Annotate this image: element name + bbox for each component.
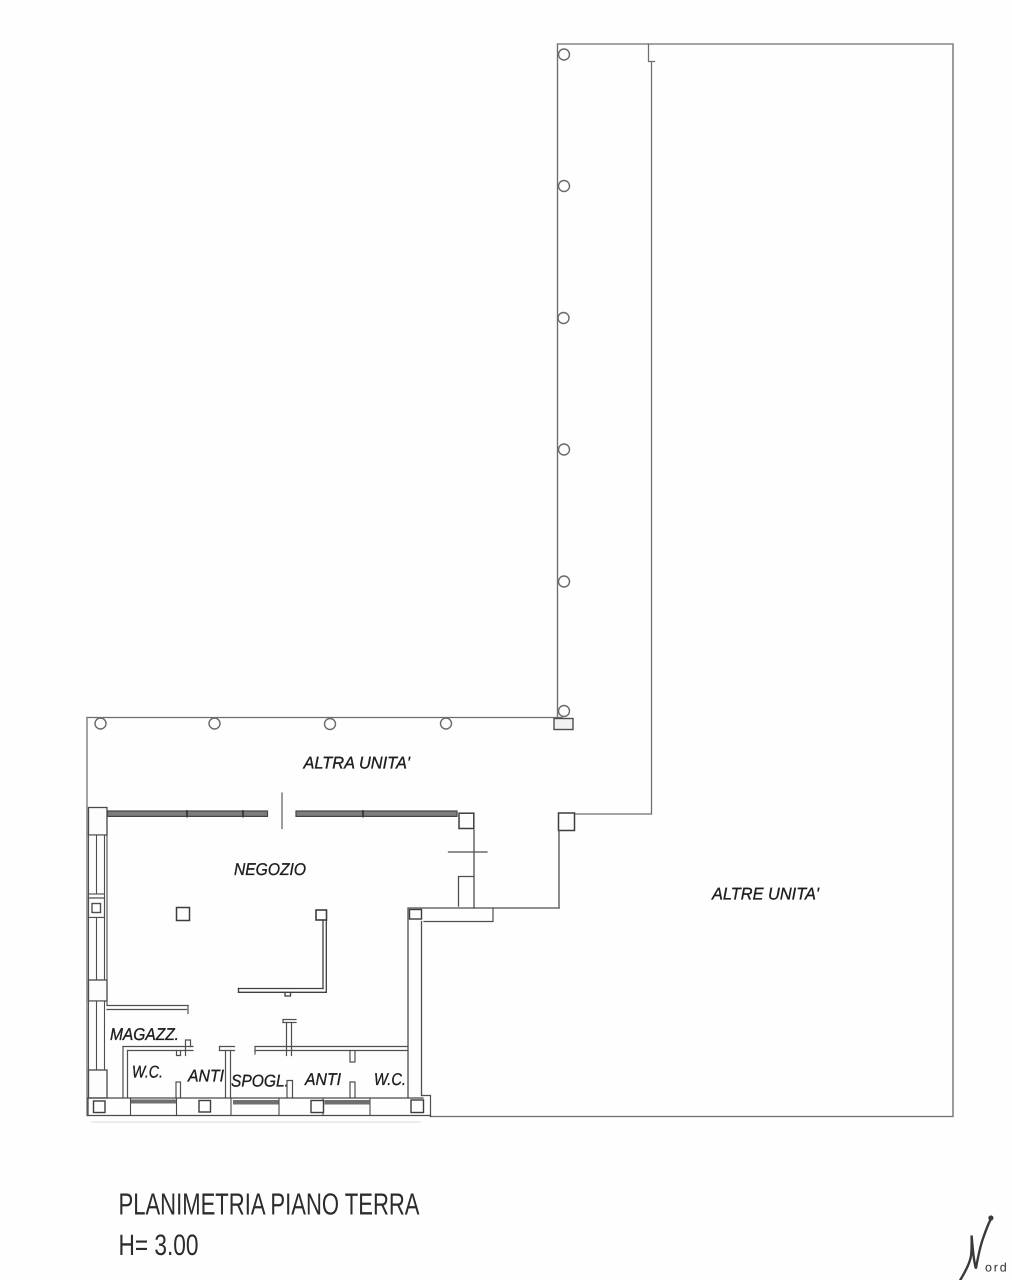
svg-text:W.C.: W.C. (132, 1063, 163, 1082)
svg-text:ALTRE UNITA': ALTRE UNITA' (711, 885, 820, 904)
svg-text:SPOGL.: SPOGL. (231, 1072, 289, 1091)
svg-text:H= 3.00: H= 3.00 (119, 1229, 199, 1262)
svg-text:ord: ord (985, 1261, 1008, 1275)
svg-text:ANTI: ANTI (187, 1067, 224, 1086)
svg-text:ANTI: ANTI (304, 1070, 341, 1089)
svg-text:PLANIMETRIA PIANO TERRA: PLANIMETRIA PIANO TERRA (119, 1188, 420, 1222)
svg-text:MAGAZZ.: MAGAZZ. (110, 1025, 179, 1044)
svg-text:W.C.: W.C. (374, 1070, 406, 1089)
svg-text:NEGOZIO: NEGOZIO (234, 860, 306, 879)
svg-text:ALTRA UNITA': ALTRA UNITA' (303, 754, 411, 773)
